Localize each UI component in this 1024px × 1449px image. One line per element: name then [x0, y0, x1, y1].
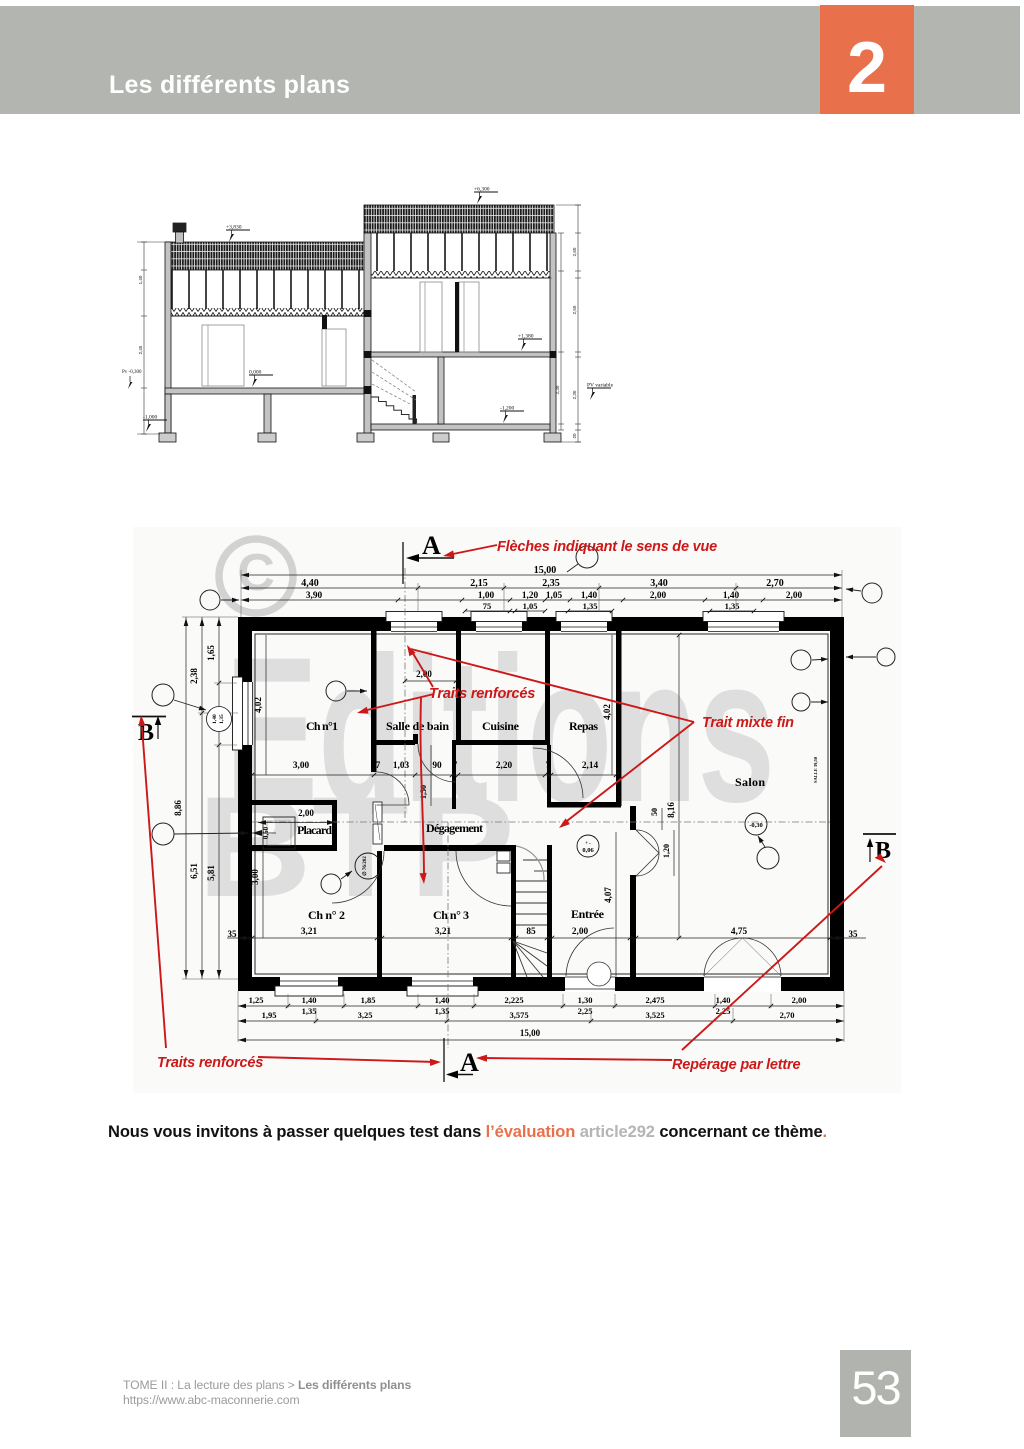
svg-text:2,00: 2,00 [650, 591, 667, 601]
svg-text:+ -: + - [585, 841, 591, 847]
svg-text:Ch n°1: Ch n°1 [306, 719, 338, 733]
svg-text:1,20: 1,20 [662, 844, 671, 858]
svg-text:2,45: 2,45 [138, 345, 143, 354]
svg-text:2,50: 2,50 [572, 305, 577, 314]
svg-text:+6,300: +6,300 [474, 187, 490, 193]
svg-text:2,30: 2,30 [572, 390, 577, 399]
svg-text:+1,380: +1,380 [518, 334, 534, 340]
svg-text:Flèches indiquant le sens de v: Flèches indiquant le sens de vue [497, 539, 717, 555]
svg-text:1,85: 1,85 [361, 995, 376, 1005]
svg-text:0,000: 0,000 [249, 370, 262, 376]
svg-text:2,20: 2,20 [496, 761, 513, 771]
svg-text:4,07: 4,07 [603, 887, 613, 903]
svg-text:3,00: 3,00 [250, 869, 260, 885]
svg-text:3,40: 3,40 [650, 578, 668, 589]
svg-text:35: 35 [849, 929, 859, 939]
svg-text:15,00: 15,00 [520, 1028, 541, 1038]
svg-text:35: 35 [228, 929, 238, 939]
svg-text:Placard: Placard [297, 823, 332, 837]
svg-text:3,21: 3,21 [301, 927, 318, 937]
svg-text:3,525: 3,525 [645, 1010, 664, 1020]
svg-text:PV variable: PV variable [587, 383, 614, 389]
svg-text:Repérage par lettre: Repérage par lettre [672, 1057, 800, 1073]
svg-text:1,25: 1,25 [249, 995, 264, 1005]
svg-text:∅ 76/202: ∅ 76/202 [362, 856, 368, 876]
svg-text:7: 7 [547, 927, 552, 937]
svg-text:4,40: 4,40 [301, 578, 319, 589]
svg-text:1,30: 1,30 [578, 995, 593, 1005]
svg-text:Dégagement: Dégagement [426, 821, 483, 835]
svg-text:2,25: 2,25 [578, 1006, 593, 1016]
svg-text:Entrée: Entrée [571, 907, 605, 921]
svg-text:1,35: 1,35 [302, 1006, 317, 1016]
svg-text:Ch n° 2: Ch n° 2 [308, 908, 345, 922]
svg-text:2,225: 2,225 [504, 995, 523, 1005]
svg-text:7: 7 [511, 927, 516, 937]
svg-text:1,95: 1,95 [262, 1010, 277, 1020]
svg-text:2,38: 2,38 [189, 668, 199, 684]
svg-text:1,40: 1,40 [716, 995, 731, 1005]
svg-text:Traits renforcés: Traits renforcés [157, 1055, 263, 1071]
svg-text:4,02: 4,02 [602, 704, 612, 720]
svg-text:1,00: 1,00 [478, 591, 495, 601]
svg-text:Trait mixte fin: Trait mixte fin [702, 715, 794, 731]
svg-text:4,75: 4,75 [731, 927, 748, 937]
svg-text:Repas: Repas [569, 719, 598, 733]
svg-text:3,25: 3,25 [358, 1010, 373, 1020]
svg-text:2,70: 2,70 [766, 578, 784, 589]
svg-text:5,81: 5,81 [206, 865, 216, 881]
svg-text:1,03: 1,03 [393, 761, 410, 771]
svg-text:1,40: 1,40 [138, 275, 143, 284]
svg-text:7: 7 [546, 761, 551, 771]
svg-text:1,40: 1,40 [302, 995, 317, 1005]
svg-text:2,00: 2,00 [572, 927, 589, 937]
svg-text:2,14: 2,14 [582, 761, 599, 771]
svg-text:7: 7 [378, 927, 383, 937]
svg-text:8,86: 8,86 [173, 800, 183, 816]
svg-text:1,35: 1,35 [725, 601, 740, 611]
svg-text:1,50: 1,50 [419, 785, 428, 799]
svg-text:1,35: 1,35 [219, 714, 225, 724]
svg-text:3,00: 3,00 [293, 761, 310, 771]
svg-text:3,90: 3,90 [306, 591, 323, 601]
svg-text:50: 50 [650, 808, 659, 816]
svg-text:1,20: 1,20 [522, 591, 539, 601]
svg-text:1,40: 1,40 [723, 591, 740, 601]
svg-text:2,70: 2,70 [780, 1010, 795, 1020]
svg-text:4,02: 4,02 [253, 697, 263, 713]
svg-text:6,51: 6,51 [189, 863, 199, 879]
svg-text:C: C [237, 544, 275, 602]
svg-text:Salon: Salon [735, 775, 765, 789]
svg-text:1,05: 1,05 [546, 591, 563, 601]
svg-text:SALLE 39,50: SALLE 39,50 [813, 756, 818, 783]
svg-text:7: 7 [453, 761, 458, 771]
svg-text:8,16: 8,16 [666, 802, 676, 818]
svg-text:2,35: 2,35 [542, 578, 560, 589]
svg-text:85: 85 [526, 927, 536, 937]
svg-text:2,00: 2,00 [298, 808, 314, 818]
svg-text:1,40: 1,40 [212, 714, 218, 724]
svg-text:2,15: 2,15 [470, 578, 488, 589]
svg-text:2,475: 2,475 [645, 995, 664, 1005]
svg-text:15,00: 15,00 [534, 565, 557, 576]
svg-text:1,40: 1,40 [435, 995, 450, 1005]
svg-text:20: 20 [572, 433, 577, 439]
svg-text:Pv -0,300: Pv -0,300 [122, 370, 142, 375]
svg-text:75: 75 [483, 601, 492, 611]
svg-text:-0,30: -0,30 [749, 822, 763, 829]
svg-text:7: 7 [376, 761, 381, 771]
svg-text:1,35: 1,35 [583, 601, 598, 611]
svg-text:90: 90 [432, 761, 442, 771]
svg-text:1,65: 1,65 [206, 645, 216, 661]
svg-text:A: A [422, 531, 441, 560]
svg-text:+3,830: +3,830 [226, 225, 242, 231]
svg-text:A: A [460, 1048, 479, 1077]
svg-text:Traits renforcés: Traits renforcés [429, 686, 535, 702]
svg-text:7: 7 [631, 927, 636, 937]
svg-text:1,05: 1,05 [523, 601, 538, 611]
svg-text:Salle de bain: Salle de bain [386, 719, 449, 733]
svg-text:-1,200: -1,200 [500, 406, 514, 412]
svg-text:Cuisine: Cuisine [482, 719, 520, 733]
svg-text:3,21: 3,21 [435, 927, 452, 937]
svg-text:1,40: 1,40 [581, 591, 598, 601]
svg-text:2,30: 2,30 [555, 385, 560, 394]
svg-text:2,00: 2,00 [792, 995, 807, 1005]
svg-text:2,60: 2,60 [572, 247, 577, 256]
svg-text:-1,000: -1,000 [143, 415, 157, 421]
svg-text:3,575: 3,575 [509, 1010, 528, 1020]
svg-text:2,00: 2,00 [786, 591, 803, 601]
svg-text:Ch n° 3: Ch n° 3 [433, 908, 469, 922]
svg-text:0,06: 0,06 [582, 847, 594, 854]
